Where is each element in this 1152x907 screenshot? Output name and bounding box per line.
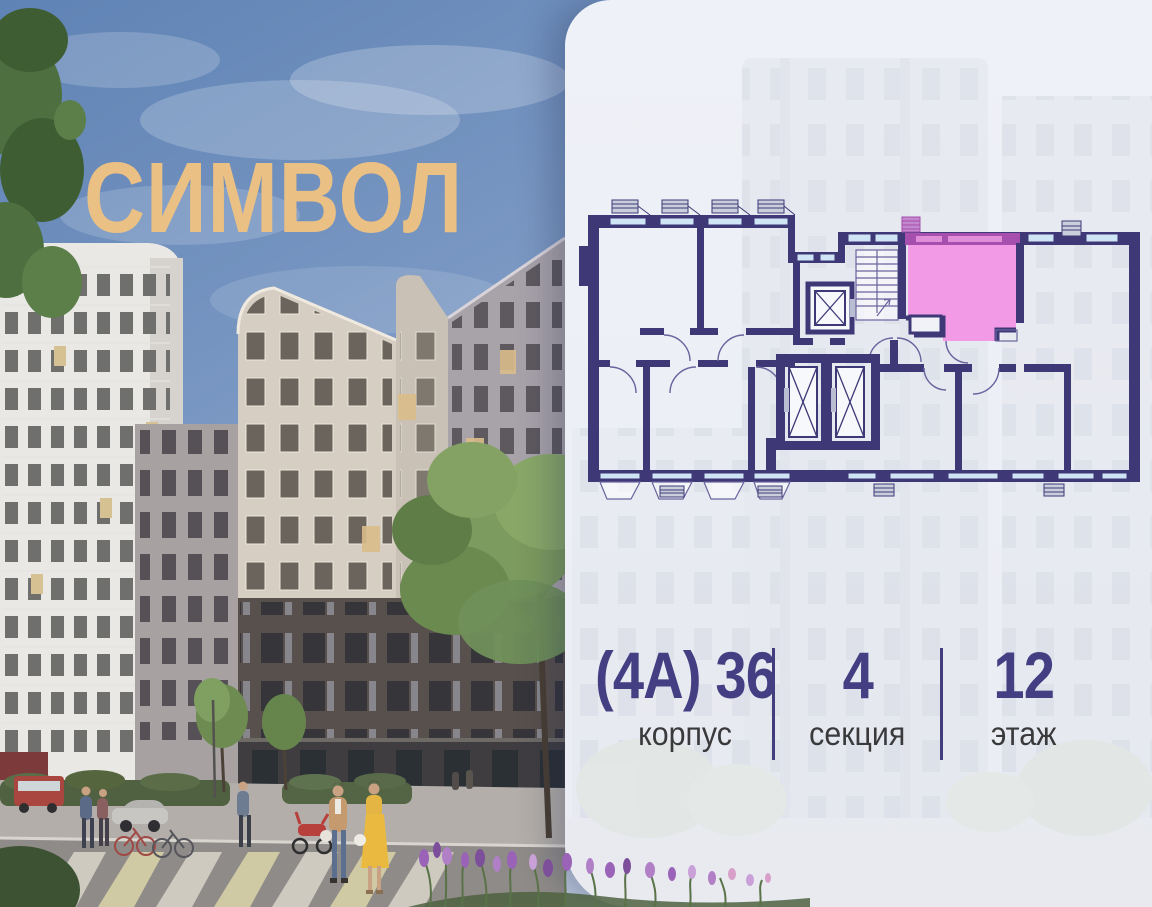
stairs (856, 250, 898, 320)
elevators-bottom (776, 354, 880, 450)
elevator-top (808, 284, 856, 332)
stat-section: 4 секция (775, 640, 940, 752)
unit-niche (910, 316, 941, 333)
floor-label: этаж (991, 716, 1057, 752)
section-label: секция (809, 716, 905, 752)
screenshot-root: СИМВОЛ (0, 0, 1152, 907)
section-value: 4 (842, 640, 872, 710)
flower-heads (419, 842, 771, 886)
building-label: корпус (639, 716, 733, 752)
foreground-flowers (408, 838, 810, 907)
panel-graphics (565, 0, 1152, 907)
stat-floor: 12 этаж (943, 640, 1152, 752)
vent-boxes-top (612, 200, 795, 215)
unit-stats: (4А) 36 корпус 4 секция 12 этаж (565, 640, 1152, 760)
apartment-info-panel: (4А) 36 корпус 4 секция 12 этаж (565, 0, 1152, 907)
brand-logo: СИМВОЛ (84, 148, 463, 248)
stat-building: (4А) 36 корпус (565, 640, 772, 752)
building-value: (4А) 36 (595, 640, 776, 710)
floor-value: 12 (993, 640, 1054, 710)
